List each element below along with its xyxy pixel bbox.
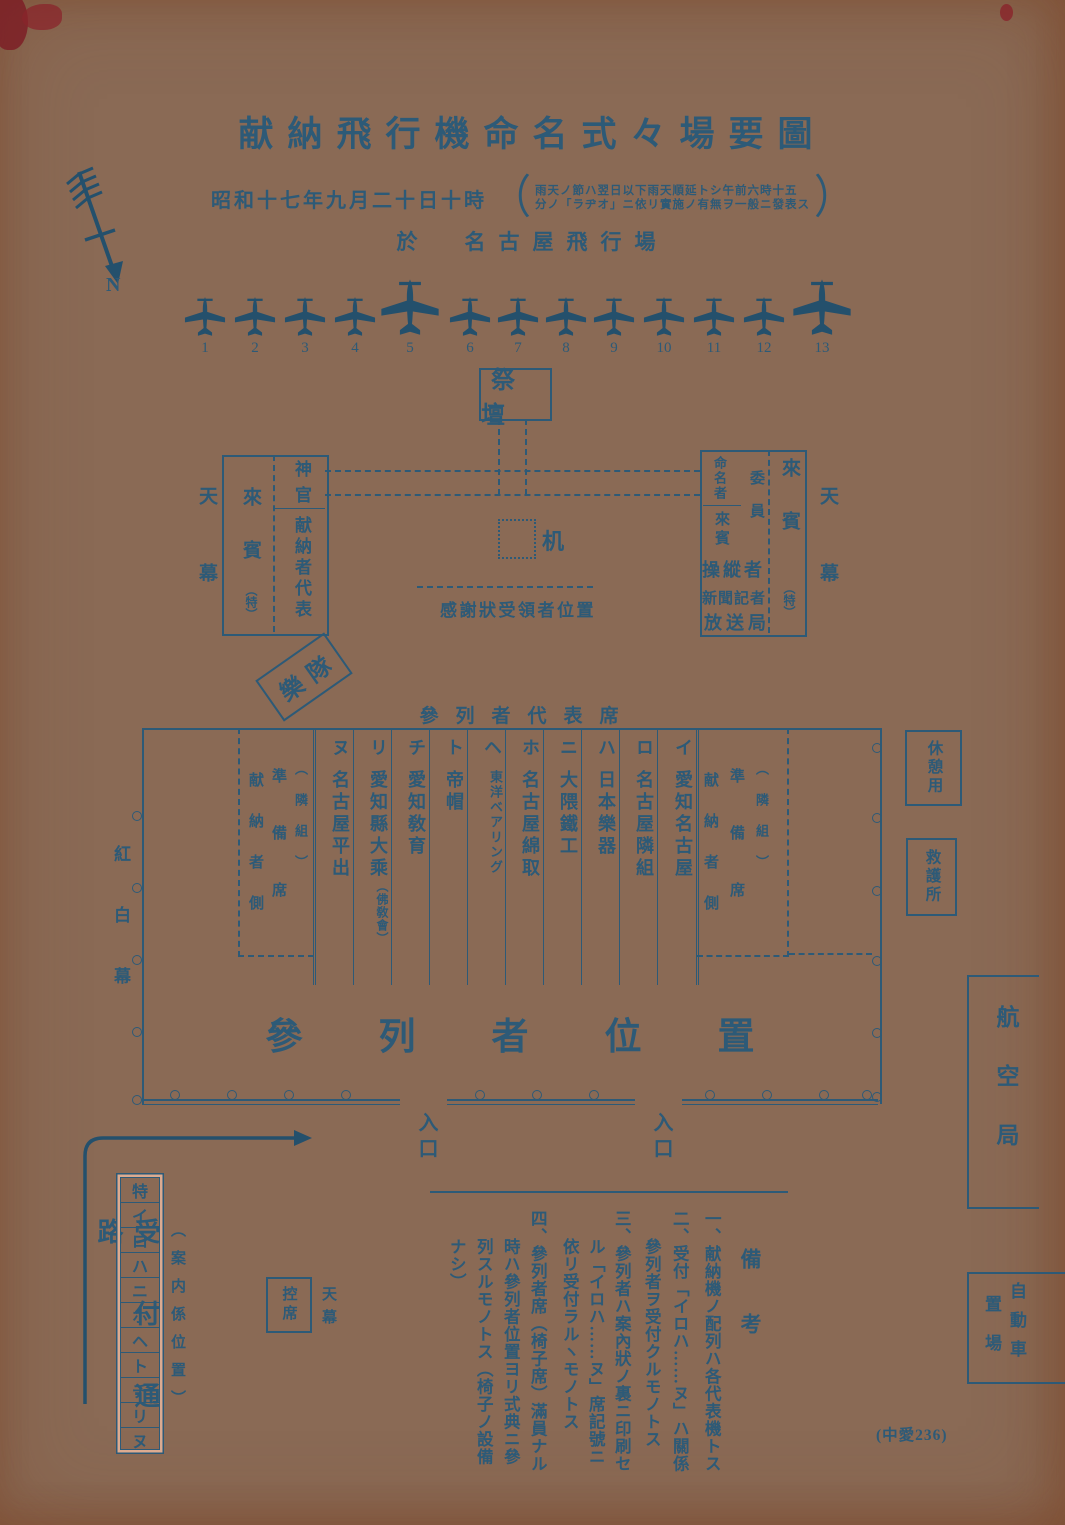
- reception-cell: ロ: [121, 1228, 159, 1253]
- entry-column: リ愛知縣大乘（佛敎會）: [354, 728, 392, 985]
- tent-label-right: 天幕: [814, 486, 841, 640]
- thanks-recipients-label: 感謝狀受領者位置: [440, 596, 596, 621]
- entry-column: ニ大隈鐵工: [544, 728, 582, 985]
- aircraft-number: 8: [544, 340, 588, 357]
- aircraft: 9: [592, 296, 636, 357]
- aircraft-number: 13: [791, 340, 853, 357]
- guest2-label: 來賓: [711, 511, 732, 549]
- divider-line: [703, 505, 741, 506]
- note-line: 一、献納機ノ配列ハ各代表機トス: [700, 1210, 722, 1473]
- divider-line: [274, 508, 325, 509]
- prep-seats-label: 準備席: [726, 768, 747, 939]
- guest-note: （特）: [243, 584, 260, 620]
- note-line: 參列者ヲ受付クルモノトス: [640, 1238, 662, 1448]
- red-ink-stain: [22, 4, 62, 30]
- reception-cell: チ: [121, 1378, 159, 1403]
- dotted-divider: [768, 450, 770, 633]
- grommet-circle: [872, 886, 882, 896]
- reception-cell: ヌ: [121, 1428, 159, 1452]
- aircraft: 8: [544, 296, 588, 357]
- entry-column: ト帝帽: [430, 728, 468, 985]
- red-ink-stain: [0, 0, 28, 50]
- donor-reps-label: 献納者代表: [289, 516, 314, 621]
- pilot-label: 操縱者: [702, 556, 765, 582]
- note-line: 依リ受付ラルヽモノトス: [558, 1238, 580, 1431]
- paren-close: ）: [814, 175, 854, 221]
- entry-column: イ愛知名古屋: [658, 728, 696, 985]
- compass-north-label: N: [106, 274, 120, 297]
- aircraft-number: 11: [692, 340, 736, 357]
- aircraft: 10: [642, 296, 686, 357]
- press-label: 新聞記者: [702, 587, 766, 608]
- aircraft-number: 9: [592, 340, 636, 357]
- aircraft-number: 10: [642, 340, 686, 357]
- grommet-circle: [872, 1092, 882, 1102]
- grommet-circle: [475, 1090, 485, 1100]
- aircraft: 4: [333, 296, 377, 357]
- rest-area-box: 休憩用: [905, 730, 962, 806]
- reception-desk: 特 イ ロ ハ ニ ホ ヘ ト チ リ ヌ: [120, 1177, 160, 1450]
- altar-box: 祭壇: [479, 368, 552, 421]
- dotted-divider: [273, 455, 275, 632]
- aircraft-number: 3: [283, 340, 327, 357]
- dotted-connector: [498, 419, 500, 495]
- grommet-circle: [132, 811, 142, 821]
- date-line: 昭和十七年九月二十日十時 （ 雨天ノ節ハ翌日以下雨天順延トシ午前六時十五 分ノ「…: [0, 178, 1065, 218]
- guest-label: 來賓: [776, 458, 803, 564]
- first-aid-box: 救護所: [906, 838, 957, 916]
- grommet-circle: [132, 1095, 142, 1105]
- attendee-position-label: 參列者位置: [142, 1006, 878, 1060]
- entry-column: ヘ東洋ベアリング: [468, 728, 506, 985]
- broadcast-label: 放送局: [704, 609, 770, 635]
- guest-label: 來賓: [237, 487, 264, 593]
- dotted-connector: [525, 419, 527, 495]
- aircraft: 11: [692, 296, 736, 357]
- desk-label: 机: [542, 524, 564, 556]
- aircraft: 7: [496, 296, 540, 357]
- reception-cell: ニ: [121, 1278, 159, 1303]
- scanned-ceremony-diagram: N 献納飛行機命名式々場要圖 昭和十七年九月二十日十時 （ 雨天ノ節ハ翌日以下雨…: [0, 0, 1065, 1525]
- donor-columns: ヌ名古屋平出 リ愛知縣大乘（佛敎會） チ愛知敎育 ト帝帽 ヘ東洋ベアリング ホ名…: [313, 728, 699, 985]
- grommet-circle: [284, 1090, 294, 1100]
- page-title: 献納飛行機命名式々場要圖: [0, 106, 1065, 157]
- parking-label: 自動車: [1004, 1282, 1029, 1369]
- dotted-line: [325, 494, 700, 496]
- grommet-circle: [705, 1090, 715, 1100]
- archive-stamp: (中愛236): [876, 1423, 948, 1445]
- entry-column: ロ名古屋隣組: [620, 728, 658, 985]
- tent-label-bottom: 天幕: [318, 1286, 339, 1332]
- committee-label: 委員: [746, 470, 767, 536]
- paren-open: （: [491, 175, 531, 221]
- entry-column: チ愛知敎育: [392, 728, 430, 985]
- notes-rule: [430, 1191, 788, 1193]
- note-line: ナシ）: [445, 1238, 467, 1291]
- guide-position-label: （案内係位置）: [167, 1222, 188, 1418]
- tent-label-left: 天幕: [193, 486, 220, 640]
- entry-column: ヌ名古屋平出: [316, 728, 354, 985]
- aircraft-number: 2: [233, 340, 277, 357]
- dotted-line: [789, 953, 872, 955]
- grommet-circle: [872, 956, 882, 966]
- aircraft: 6: [448, 296, 492, 357]
- aircraft-number: 1: [183, 340, 227, 357]
- donor-side-label: 献納者側: [700, 772, 721, 936]
- reception-cell: ホ: [121, 1303, 159, 1328]
- grommet-circle: [872, 743, 882, 753]
- aircraft-number: 7: [496, 340, 540, 357]
- reps-seats-label: 參列者代表席: [0, 701, 1055, 728]
- reception-cell: 特: [121, 1178, 159, 1203]
- red-ink-stain: [1000, 4, 1013, 21]
- aircraft-number: 12: [742, 340, 786, 357]
- weather-note: 雨天ノ節ハ翌日以下雨天順延トシ午前六時十五 分ノ「ラヂオ」ニ依リ實施ノ有無ヲ一般…: [535, 184, 810, 212]
- grommet-circle: [170, 1090, 180, 1100]
- aircraft: 2: [233, 296, 277, 357]
- grommet-circle: [872, 813, 882, 823]
- grommet-circle: [132, 955, 142, 965]
- namer-label: 命名者: [710, 456, 729, 501]
- reception-cell: ト: [121, 1353, 159, 1378]
- aircraft-number: 4: [333, 340, 377, 357]
- entrance-label: 入口: [647, 1112, 676, 1164]
- aircraft: 12: [742, 296, 786, 357]
- note-line: 四、參列者席（椅子席）滿員ナル: [526, 1210, 548, 1473]
- prep-seats-label: 準備席: [268, 768, 289, 939]
- aircraft: 1: [183, 296, 227, 357]
- bottom-border-segment: [142, 1099, 400, 1105]
- grommet-circle: [227, 1090, 237, 1100]
- reception-cell: ハ: [121, 1253, 159, 1278]
- grommet-circle: [589, 1090, 599, 1100]
- note-line: ル「イロハ……ヌ」席記號ニ: [584, 1238, 606, 1466]
- aircraft-large: 13: [791, 278, 853, 357]
- note-line: 列スルモノトス（椅子ノ設備: [472, 1238, 494, 1466]
- grommet-circle: [132, 1027, 142, 1037]
- neighborhood-group-label: （隣組）: [752, 762, 771, 886]
- grommet-circle: [819, 1090, 829, 1100]
- note-line: 三、參列者ハ案內狀ノ裏ニ印刷セ: [610, 1210, 632, 1473]
- entry-column: ホ名古屋綿取: [506, 728, 544, 985]
- parking-label: 置場: [979, 1295, 1004, 1373]
- entrance-label: 入口: [412, 1112, 441, 1164]
- aircraft-large: 5: [379, 278, 441, 357]
- reception-cell: リ: [121, 1403, 159, 1428]
- dotted-line: [325, 470, 700, 472]
- guest-note: （特）: [781, 582, 798, 618]
- desk-box: [498, 519, 536, 559]
- waiting-seats-box: 控席: [266, 1277, 312, 1333]
- neighborhood-group-label: （隣組）: [291, 762, 310, 886]
- grommet-circle: [862, 1090, 872, 1100]
- aircraft: 3: [283, 296, 327, 357]
- reception-cell: イ: [121, 1203, 159, 1228]
- bottom-border-segment: [682, 1099, 878, 1105]
- aircraft-number: 6: [448, 340, 492, 357]
- aviation-bureau-label: 航空局: [988, 1005, 1022, 1182]
- note-line: 時ハ參列者位置ヨリ式典ニ參: [499, 1238, 521, 1466]
- priest-label: 神官: [289, 460, 314, 512]
- venue-line: 於 名古屋飛行場: [0, 226, 1065, 256]
- bottom-border-segment: [447, 1099, 635, 1105]
- reception-cell: ヘ: [121, 1328, 159, 1353]
- note-line: 二、受付「イロハ……ヌ」ハ關係: [668, 1210, 690, 1473]
- grommet-circle: [872, 1028, 882, 1038]
- red-white-curtain-label: 紅白幕: [108, 845, 133, 1028]
- donor-side-label: 献納者側: [245, 772, 266, 936]
- grommet-circle: [532, 1090, 542, 1100]
- grommet-circle: [132, 883, 142, 893]
- notes-header: 備考: [735, 1248, 765, 1378]
- grommet-circle: [341, 1090, 351, 1100]
- dotted-line: [417, 586, 593, 588]
- grommet-circle: [762, 1090, 772, 1100]
- ceremony-date: 昭和十七年九月二十日十時: [211, 184, 487, 213]
- entry-column: ハ日本樂器: [582, 728, 620, 985]
- aircraft-number: 5: [379, 340, 441, 357]
